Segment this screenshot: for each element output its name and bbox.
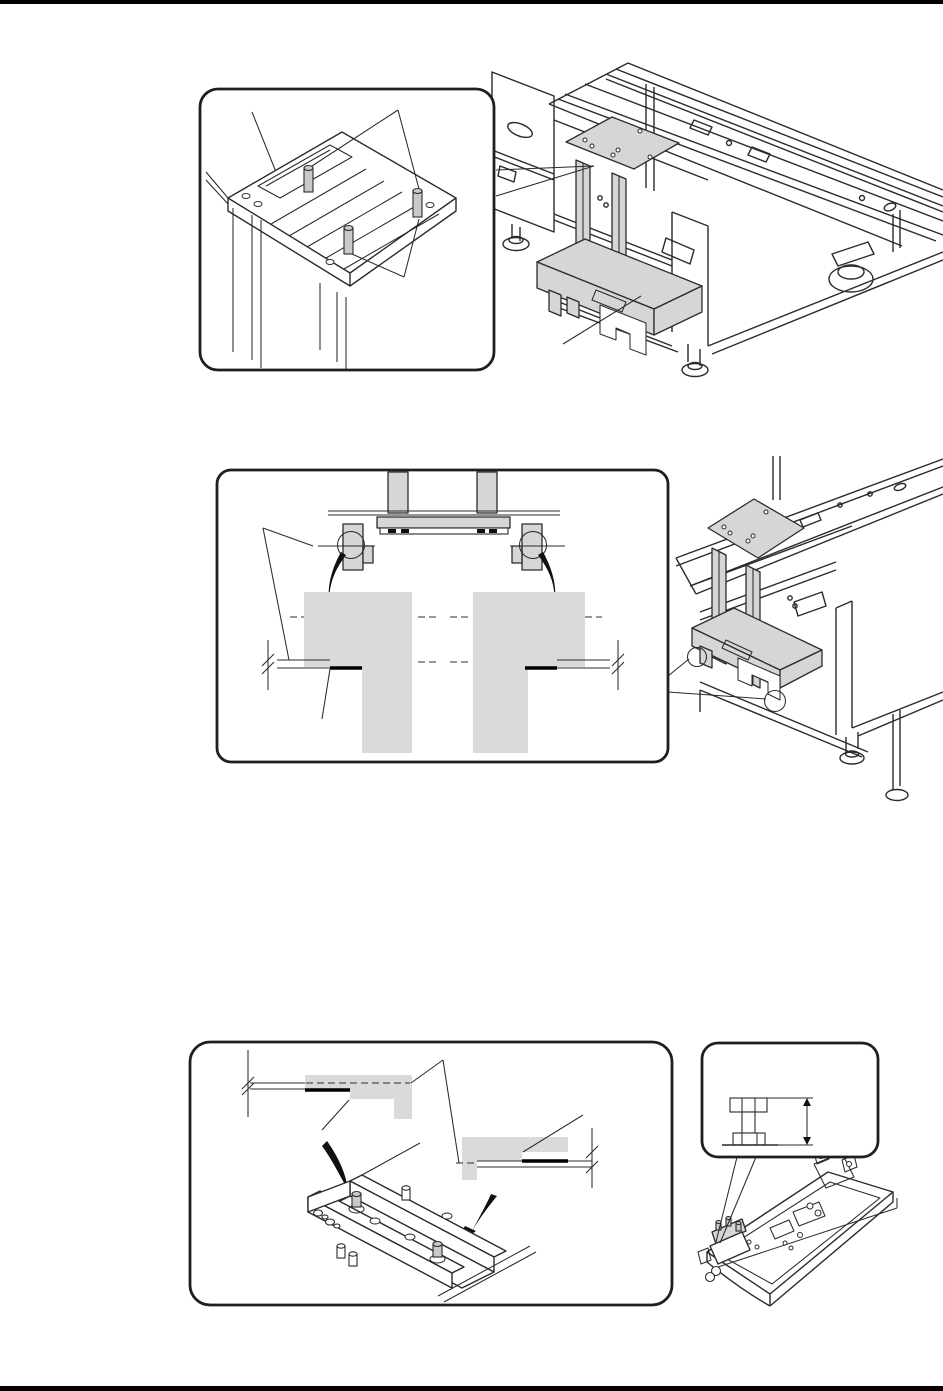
figure-top: [200, 63, 943, 377]
caster-wheel: [829, 242, 874, 292]
page-bottom-rule: [0, 1386, 943, 1391]
lift-bracket-1: [537, 117, 702, 355]
manual-page: [0, 0, 943, 1391]
figure-middle: [217, 456, 943, 801]
technical-drawing-canvas: [0, 0, 943, 1391]
base-plate-isometric: [698, 1147, 897, 1306]
leveling-foot-middle: [840, 732, 864, 764]
leveling-foot-right: [682, 344, 708, 377]
callout-box-front-view: [217, 470, 668, 762]
callout-box-pin-section: [702, 1043, 878, 1157]
figure-bottom: [190, 1042, 897, 1306]
machine-frame-1: [492, 63, 943, 377]
leveling-foot-left: [503, 224, 529, 251]
